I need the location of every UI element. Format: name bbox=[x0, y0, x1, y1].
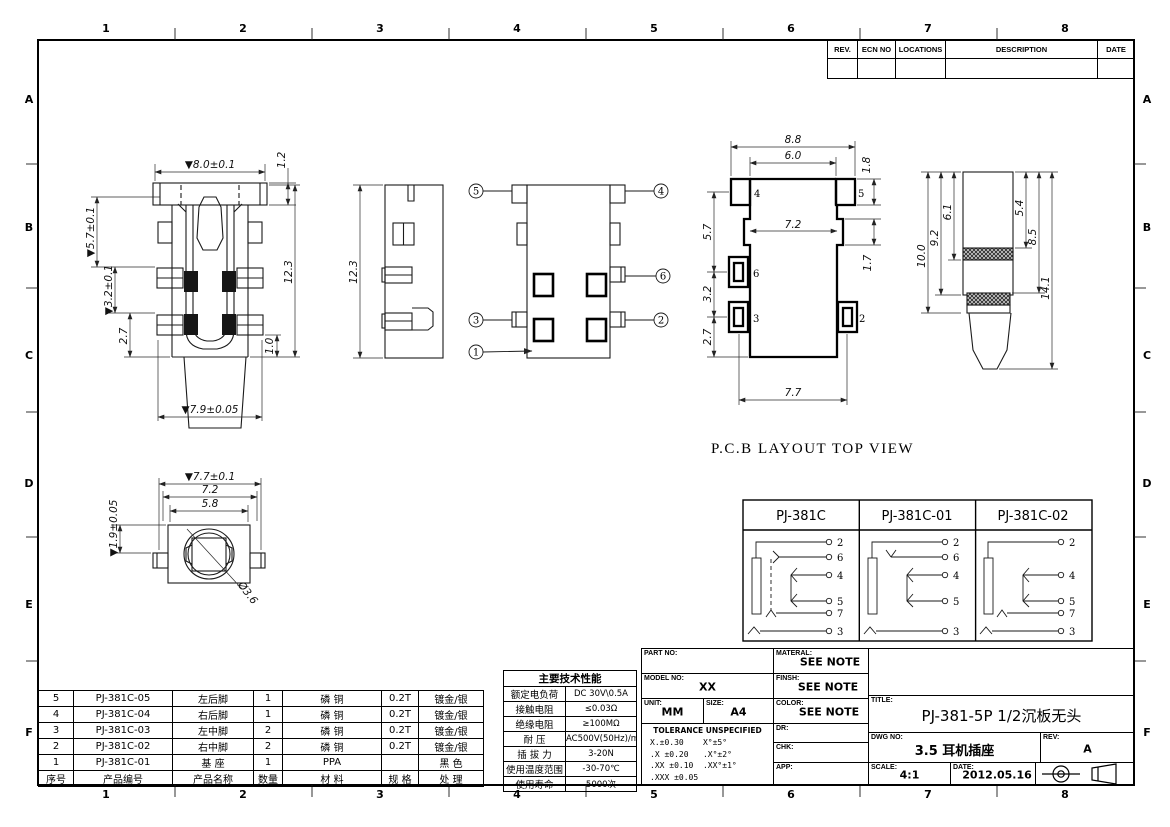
rev-cell-empty bbox=[896, 59, 946, 79]
dim-front-flange: 1.2 bbox=[276, 151, 288, 168]
part-cell: 4 bbox=[39, 707, 74, 723]
drawing-title: PJ-381-5P 1/2沉板无头 bbox=[869, 705, 1134, 726]
scale-value: 4:1 bbox=[869, 769, 950, 782]
unit-value: MM bbox=[642, 706, 703, 719]
contact-pads bbox=[184, 271, 236, 335]
solder-pads bbox=[534, 274, 606, 341]
spec-value: 3-20N bbox=[566, 747, 637, 762]
spec-value: AC500V(50Hz)/min bbox=[566, 732, 637, 747]
sch1-pin: 4 bbox=[837, 571, 843, 582]
part-cell: 镀金/银 bbox=[419, 739, 484, 755]
dim-pcb-h1: 5.7 bbox=[702, 223, 714, 240]
rev-cell-empty bbox=[858, 59, 896, 79]
pin-callout-1: 1 bbox=[473, 348, 479, 359]
spec-value: ≥100MΩ bbox=[566, 717, 637, 732]
drawing-sheet: 1 2 3 4 5 6 7 8 1 2 3 4 5 6 7 8 A B C D … bbox=[0, 0, 1170, 827]
material-cell: MATERAL: SEE NOTE bbox=[773, 648, 869, 674]
dr-label: DR: bbox=[776, 725, 788, 732]
part-header: 产品名称 bbox=[173, 771, 254, 787]
title-cell: TITLE: PJ-381-5P 1/2沉板无头 bbox=[868, 695, 1135, 733]
dim-plug-l1: 10.0 bbox=[916, 244, 928, 268]
projection-cell bbox=[1035, 762, 1135, 786]
view-front-face: ▼7.7±0.1 7.2 5.8 ▼1.9±0.05 Ø3.6 bbox=[108, 471, 265, 607]
circuit-table: PJ-381C PJ-381C-01 PJ-381C-02 2 6 4 5 7 … bbox=[743, 500, 1092, 641]
sch1-pin: 3 bbox=[837, 627, 843, 638]
dim-front-width-top: ▼8.0±0.1 bbox=[185, 159, 235, 171]
part-cell: 左中脚 bbox=[173, 723, 254, 739]
spec-value: -30-70℃ bbox=[566, 762, 637, 777]
circuit-title-2: PJ-381C-01 bbox=[881, 509, 952, 524]
dim-front-h2: ▼3.2±0.1 bbox=[103, 265, 115, 315]
part-header: 产品编号 bbox=[74, 771, 173, 787]
size-cell: SIZE: A4 bbox=[703, 698, 774, 724]
rev-cell-empty bbox=[1098, 59, 1135, 79]
sch2-pin: 5 bbox=[953, 597, 959, 608]
view-pcb-layout: 8.8 6.0 1.8 7.2 1.7 5.7 3.2 2.7 7.7 4 5 … bbox=[702, 134, 914, 457]
table-row: 5PJ-381C-05 左后脚1 磷 铜0.2T 镀金/银 bbox=[39, 691, 484, 707]
blank-cell bbox=[868, 648, 1135, 696]
date-value: 2012.05.16 bbox=[959, 769, 1035, 782]
part-cell: 磷 铜 bbox=[283, 691, 382, 707]
part-cell bbox=[382, 755, 419, 771]
dim-pcb-w3: 7.2 bbox=[785, 219, 802, 231]
part-cell: 0.2T bbox=[382, 723, 419, 739]
rev-header: LOCATIONS bbox=[896, 41, 946, 59]
pcb-pad-5: 5 bbox=[858, 189, 864, 200]
dim-front-width-bottom: ▼7.9±0.05 bbox=[182, 404, 239, 416]
dim-front-pin: 1.0 bbox=[264, 337, 276, 354]
part-cell: 右中脚 bbox=[173, 739, 254, 755]
schematic-pj381c-01 bbox=[864, 539, 948, 634]
part-cell: 镀金/银 bbox=[419, 691, 484, 707]
part-cell: 磷 铜 bbox=[283, 707, 382, 723]
unit-cell: UNIT: MM bbox=[641, 698, 704, 724]
finish-value: SEE NOTE bbox=[788, 681, 868, 694]
part-cell: 基 座 bbox=[173, 755, 254, 771]
dim-face-h: ▼1.9±0.05 bbox=[108, 499, 120, 556]
schematic-pj381c-02 bbox=[980, 539, 1064, 634]
pcb-pad-3: 3 bbox=[753, 314, 759, 325]
sch2-pin: 2 bbox=[953, 538, 959, 549]
dim-pcb-h2: 3.2 bbox=[702, 285, 714, 302]
rev-cell-empty bbox=[828, 59, 858, 79]
dim-pcb-pad: 1.8 bbox=[861, 156, 873, 173]
dwg-no-value: 3.5 耳机插座 bbox=[869, 740, 1040, 759]
part-cell: 1 bbox=[254, 691, 283, 707]
part-cell: 0.2T bbox=[382, 707, 419, 723]
part-cell: 镀金/银 bbox=[419, 707, 484, 723]
part-no-label: PART NO: bbox=[644, 650, 677, 657]
model-no-cell: MODEL NO: XX bbox=[641, 673, 774, 699]
spec-label: 使用寿命 bbox=[504, 777, 566, 792]
spec-label: 使用温度范围 bbox=[504, 762, 566, 777]
parts-table: 5PJ-381C-05 左后脚1 磷 铜0.2T 镀金/银 4PJ-381C-0… bbox=[38, 690, 484, 787]
part-cell: 3 bbox=[39, 723, 74, 739]
sch2-pin: 3 bbox=[953, 627, 959, 638]
sch2-pin: 6 bbox=[953, 553, 959, 564]
table-header-row: 序号产品编号 产品名称数量 材 料规 格 处 理 bbox=[39, 771, 484, 787]
part-cell: PJ-381C-04 bbox=[74, 707, 173, 723]
sch3-pin: 2 bbox=[1069, 538, 1075, 549]
part-header: 规 格 bbox=[382, 771, 419, 787]
dim-face-w1: ▼7.7±0.1 bbox=[185, 471, 235, 483]
dim-plug-r2: 8.5 bbox=[1027, 228, 1039, 245]
dim-plug-l2: 9.2 bbox=[929, 229, 941, 246]
spec-value: DC 30V\0.5A bbox=[566, 687, 637, 702]
view-front-section: ▼8.0±0.1 1.2 ▼5.7±0.1 ▼3.2±0.1 2.7 12.3 … bbox=[85, 151, 300, 428]
part-cell: PPA bbox=[283, 755, 382, 771]
part-header: 处 理 bbox=[419, 771, 484, 787]
dim-front-h3: 2.7 bbox=[118, 327, 130, 344]
part-cell: 磷 铜 bbox=[283, 739, 382, 755]
part-cell: 黑 色 bbox=[419, 755, 484, 771]
sch2-pin: 4 bbox=[953, 571, 959, 582]
part-cell: PJ-381C-02 bbox=[74, 739, 173, 755]
part-cell: 0.2T bbox=[382, 691, 419, 707]
pin-callout-5: 5 bbox=[473, 187, 479, 198]
chk-cell: CHK: bbox=[773, 742, 869, 763]
part-cell: PJ-381C-05 bbox=[74, 691, 173, 707]
view-bottom-pins: 5 4 6 3 2 1 bbox=[469, 184, 670, 359]
size-value: A4 bbox=[704, 706, 773, 719]
part-cell: 2 bbox=[254, 723, 283, 739]
dim-pcb-w4: 7.7 bbox=[785, 387, 802, 399]
part-cell: 1 bbox=[254, 755, 283, 771]
part-cell: PJ-381C-01 bbox=[74, 755, 173, 771]
color-cell: COLOR: SEE NOTE bbox=[773, 698, 869, 724]
sch1-pin: 6 bbox=[837, 553, 843, 564]
dim-face-w2: 7.2 bbox=[202, 484, 219, 496]
sch1-pin: 7 bbox=[837, 609, 843, 620]
sch3-pin: 4 bbox=[1069, 571, 1075, 582]
part-header: 材 料 bbox=[283, 771, 382, 787]
view-side: 12.3 bbox=[348, 185, 443, 358]
rev-header: DESCRIPTION bbox=[946, 41, 1098, 59]
table-row: 3PJ-381C-03 左中脚2 磷 铜0.2T 镀金/银 bbox=[39, 723, 484, 739]
part-header: 数量 bbox=[254, 771, 283, 787]
finish-cell: FINSH: SEE NOTE bbox=[773, 673, 869, 699]
part-cell: PJ-381C-03 bbox=[74, 723, 173, 739]
third-angle-projection-icon bbox=[1036, 763, 1134, 785]
rev-label: REV: bbox=[1043, 734, 1059, 741]
schematic-pj381c bbox=[748, 539, 832, 634]
model-no-value: XX bbox=[642, 681, 773, 694]
dim-pcb-h3: 2.7 bbox=[702, 328, 714, 345]
pcb-pad-6: 6 bbox=[753, 269, 759, 280]
tolerance-lines: X.±0.30 X°±5°.X ±0.20 .X°±2°.XX ±0.10 .X… bbox=[650, 737, 737, 783]
tolerance-cell: TOLERANCE UNSPECIFIED X.±0.30 X°±5°.X ±0… bbox=[641, 723, 774, 786]
scale-cell: SCALE: 4:1 bbox=[868, 762, 951, 786]
spec-value: ≤0.03Ω bbox=[566, 702, 637, 717]
rev-header: ECN NO bbox=[858, 41, 896, 59]
spec-label: 额定电负荷 bbox=[504, 687, 566, 702]
dr-cell: DR: bbox=[773, 723, 869, 743]
sch1-pin: 5 bbox=[837, 597, 843, 608]
rev-value: A bbox=[1041, 742, 1134, 755]
pin-callout-3: 3 bbox=[473, 316, 479, 327]
title-label: TITLE: bbox=[871, 697, 893, 704]
circuit-title-1: PJ-381C bbox=[776, 509, 826, 524]
part-cell: 镀金/银 bbox=[419, 723, 484, 739]
spec-label: 插 拔 力 bbox=[504, 747, 566, 762]
dim-plug-l3: 6.1 bbox=[942, 204, 954, 221]
rev-header: DATE bbox=[1098, 41, 1135, 59]
rev-header: REV. bbox=[828, 41, 858, 59]
table-row: 2PJ-381C-02 右中脚2 磷 铜0.2T 镀金/银 bbox=[39, 739, 484, 755]
part-cell: 1 bbox=[254, 707, 283, 723]
spec-label: 耐 压 bbox=[504, 732, 566, 747]
sch3-pin: 5 bbox=[1069, 597, 1075, 608]
color-value: SEE NOTE bbox=[790, 706, 868, 719]
spec-value: 5000次 bbox=[566, 777, 637, 792]
view-plug: 10.0 9.2 6.1 5.4 8.5 14.1 bbox=[916, 172, 1058, 369]
sch3-pin: 7 bbox=[1069, 609, 1075, 620]
rev-cell-empty bbox=[946, 59, 1098, 79]
dim-plug-r1: 5.4 bbox=[1014, 200, 1026, 217]
part-cell: 1 bbox=[39, 755, 74, 771]
pcb-caption: P.C.B LAYOUT TOP VIEW bbox=[711, 441, 914, 457]
chk-label: CHK: bbox=[776, 744, 794, 751]
dim-plug-r3: 14.1 bbox=[1040, 276, 1052, 299]
dim-pcb-w2: 6.0 bbox=[785, 150, 802, 162]
table-row: 1PJ-381C-01 基 座1 PPA 黑 色 bbox=[39, 755, 484, 771]
part-cell: 5 bbox=[39, 691, 74, 707]
pcb-pad-4: 4 bbox=[754, 189, 760, 200]
part-cell: 0.2T bbox=[382, 739, 419, 755]
spec-title: 主要技术性能 bbox=[504, 671, 637, 687]
table-row: 4PJ-381C-04 右后脚1 磷 铜0.2T 镀金/银 bbox=[39, 707, 484, 723]
part-no-cell: PART NO: bbox=[641, 648, 774, 674]
dim-front-height: 12.3 bbox=[283, 260, 295, 283]
pcb-pad-2: 2 bbox=[859, 314, 865, 325]
spec-label: 绝缘电阻 bbox=[504, 717, 566, 732]
app-cell: APP: bbox=[773, 762, 869, 786]
dim-pcb-w1: 8.8 bbox=[785, 134, 802, 146]
dim-pcb-step: 1.7 bbox=[862, 254, 874, 271]
circuit-title-3: PJ-381C-02 bbox=[997, 509, 1068, 524]
pin-callout-2: 2 bbox=[658, 316, 664, 327]
material-value: SEE NOTE bbox=[792, 656, 868, 669]
date-cell: DATE: 2012.05.16 bbox=[950, 762, 1036, 786]
sch3-pin: 3 bbox=[1069, 627, 1075, 638]
dim-side-height: 12.3 bbox=[348, 260, 360, 283]
part-cell: 2 bbox=[254, 739, 283, 755]
part-cell: 磷 铜 bbox=[283, 723, 382, 739]
part-cell: 左后脚 bbox=[173, 691, 254, 707]
app-label: APP: bbox=[776, 764, 793, 771]
dim-front-h1: ▼5.7±0.1 bbox=[85, 207, 97, 257]
tolerance-title: TOLERANCE UNSPECIFIED bbox=[642, 726, 773, 735]
sch1-pin: 2 bbox=[837, 538, 843, 549]
part-cell: 2 bbox=[39, 739, 74, 755]
part-cell: 右后脚 bbox=[173, 707, 254, 723]
rev-cell: REV: A bbox=[1040, 732, 1135, 763]
part-header: 序号 bbox=[39, 771, 74, 787]
dwg-no-cell: DWG NO: 3.5 耳机插座 bbox=[868, 732, 1041, 763]
pin-callout-6: 6 bbox=[660, 272, 666, 283]
pin-callout-4: 4 bbox=[658, 187, 664, 198]
dim-face-w3: 5.8 bbox=[202, 498, 219, 510]
spec-label: 接触电阻 bbox=[504, 702, 566, 717]
revision-table: REV. ECN NO LOCATIONS DESCRIPTION DATE bbox=[827, 40, 1135, 79]
spec-table: 主要技术性能 额定电负荷DC 30V\0.5A 接触电阻≤0.03Ω 绝缘电阻≥… bbox=[503, 670, 637, 792]
